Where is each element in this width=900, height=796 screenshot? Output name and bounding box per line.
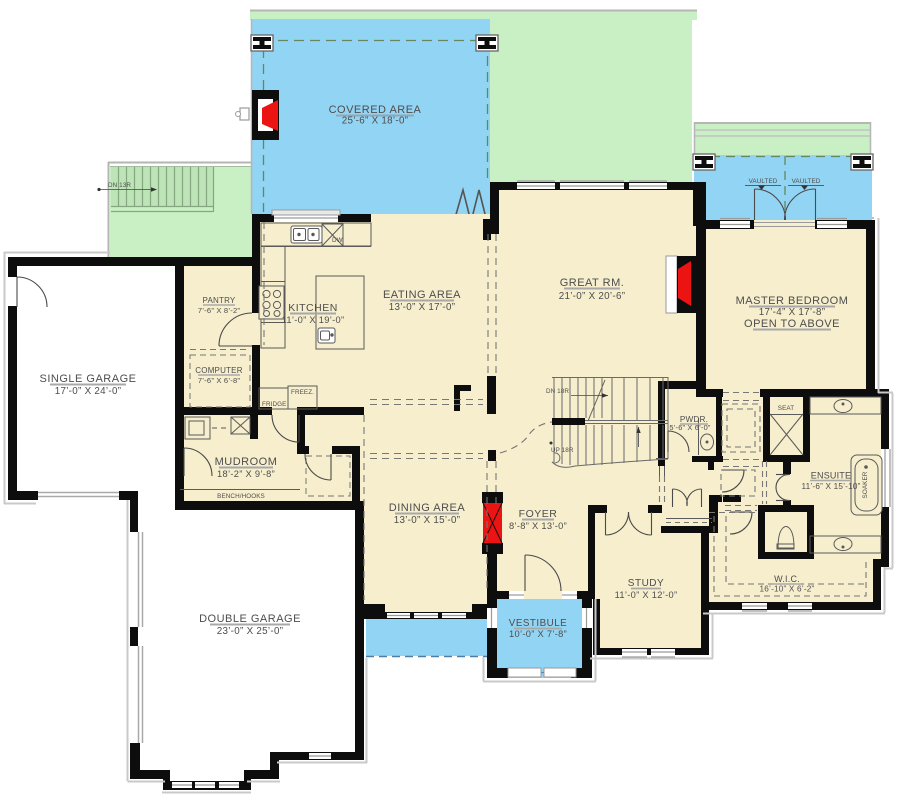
svg-text:COMPUTER: COMPUTER (195, 366, 242, 375)
svg-text:13’-0” X 15’-0”: 13’-0” X 15’-0” (394, 515, 461, 526)
svg-text:16’-10” X 6’-2”: 16’-10” X 6’-2” (760, 585, 815, 594)
svg-text:5’-6” X 6’-0”: 5’-6” X 6’-0” (669, 423, 711, 432)
svg-text:11’-0” X 19’-0”: 11’-0” X 19’-0” (282, 315, 345, 325)
svg-text:10’-0” X 7’-8”: 10’-0” X 7’-8” (509, 629, 567, 639)
svg-text:23’-0” X 25’-0”: 23’-0” X 25’-0” (217, 626, 284, 637)
svg-text:SEAT: SEAT (778, 405, 794, 412)
svg-text:MUDROOM: MUDROOM (215, 456, 278, 468)
svg-text:25’-6” X 18’-0”: 25’-6” X 18’-0” (342, 116, 409, 127)
svg-text:ENSUITE: ENSUITE (811, 471, 851, 481)
svg-text:GREAT RM.: GREAT RM. (560, 277, 625, 289)
svg-text:OPEN TO ABOVE: OPEN TO ABOVE (744, 318, 840, 330)
svg-text:18’-2” X 9’-8”: 18’-2” X 9’-8” (217, 469, 275, 479)
svg-text:FRIDGE: FRIDGE (262, 401, 286, 408)
svg-text:7’-6” X 6’-8”: 7’-6” X 6’-8” (198, 376, 241, 385)
svg-text:17’-4” X 17’-8”: 17’-4” X 17’-8” (759, 307, 826, 318)
svg-text:VESTIBULE: VESTIBULE (509, 618, 567, 629)
svg-text:KITCHEN: KITCHEN (288, 302, 338, 314)
svg-text:SINGLE GARAGE: SINGLE GARAGE (40, 373, 137, 385)
svg-text:STUDY: STUDY (628, 578, 664, 589)
svg-text:13’-0” X 17’-0”: 13’-0” X 17’-0” (389, 302, 456, 313)
svg-text:VAULTED: VAULTED (749, 178, 778, 185)
svg-text:DOUBLE GARAGE: DOUBLE GARAGE (199, 613, 301, 625)
svg-text:FREEZ.: FREEZ. (291, 389, 314, 396)
svg-text:8’-8” X 13’-0”: 8’-8” X 13’-0” (509, 521, 567, 531)
svg-text:SOAKER: SOAKER (862, 471, 869, 498)
svg-text:11’-6” X 15’-10”: 11’-6” X 15’-10” (801, 482, 860, 491)
svg-text:VAULTED: VAULTED (792, 178, 821, 185)
svg-text:7’-6” X 8’-2”: 7’-6” X 8’-2” (198, 306, 241, 315)
svg-text:DINING AREA: DINING AREA (389, 502, 466, 514)
svg-text:MASTER BEDROOM: MASTER BEDROOM (736, 295, 849, 307)
svg-text:21’-0” X 20’-6”: 21’-0” X 20’-6” (559, 291, 626, 302)
svg-text:11’-0” X 12’-0”: 11’-0” X 12’-0” (615, 590, 678, 600)
svg-text:FOYER: FOYER (519, 508, 558, 520)
svg-text:W.I.C.: W.I.C. (774, 574, 800, 584)
svg-text:DN 13R: DN 13R (108, 182, 131, 189)
svg-text:17’-0” X 24’-0”: 17’-0” X 24’-0” (55, 386, 122, 397)
svg-text:UP 18R: UP 18R (551, 447, 574, 454)
svg-text:BENCH/HOOKS: BENCH/HOOKS (217, 493, 265, 500)
svg-text:COVERED AREA: COVERED AREA (329, 104, 422, 116)
svg-text:DW: DW (332, 237, 343, 244)
svg-text:EATING AREA: EATING AREA (383, 289, 461, 301)
svg-text:DN 18R: DN 18R (546, 388, 569, 395)
svg-text:PANTRY: PANTRY (203, 296, 236, 305)
